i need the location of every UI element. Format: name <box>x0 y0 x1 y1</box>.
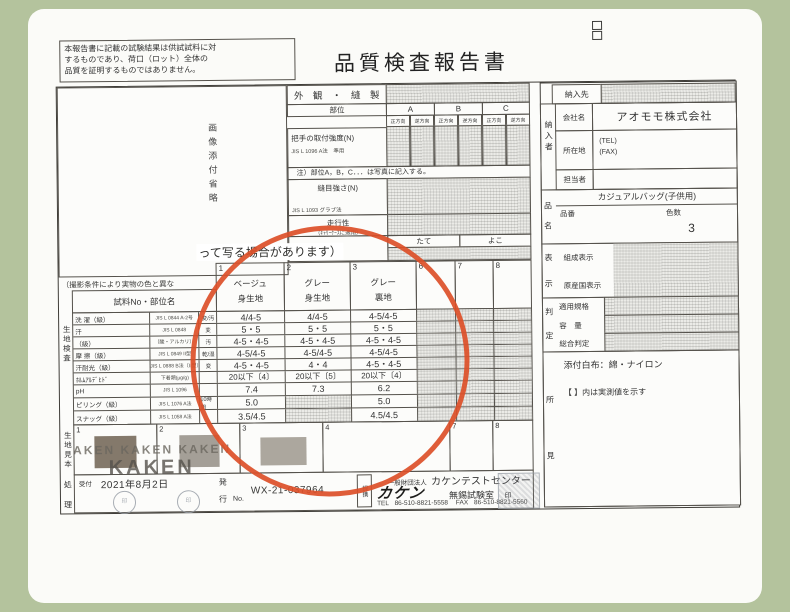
red-circle-annotation <box>0 0 790 612</box>
